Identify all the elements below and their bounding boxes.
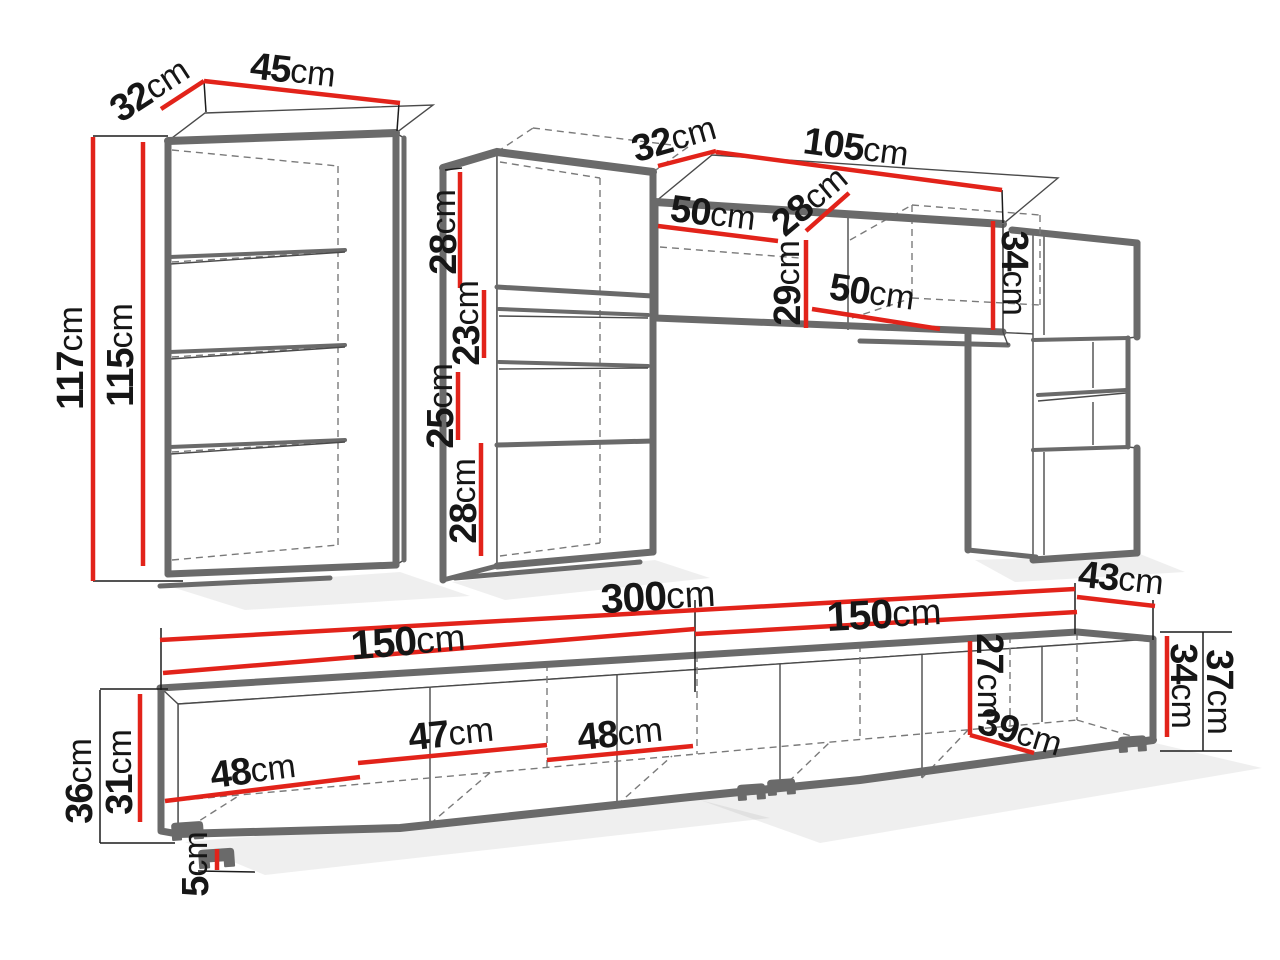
left-cabinet-front-face bbox=[168, 133, 396, 574]
label-mid-25: 25cm bbox=[420, 363, 462, 449]
label-117: 117cm bbox=[50, 306, 92, 410]
label-31: 31cm bbox=[99, 729, 141, 815]
label-mid-28-top: 28cm bbox=[423, 189, 465, 275]
label-34-stand: 34cm bbox=[1162, 643, 1204, 729]
left-tall-cabinet bbox=[160, 105, 433, 586]
label-36: 36cm bbox=[59, 738, 101, 824]
label-mid-23: 23cm bbox=[446, 280, 488, 366]
label-left-depth: 32cm bbox=[103, 49, 198, 131]
label-37: 37cm bbox=[1198, 649, 1240, 735]
label-mid-28-bottom: 28cm bbox=[443, 458, 485, 544]
label-300: 300cm bbox=[599, 570, 716, 622]
diagram-canvas: 32cm 45cm 117cm 115cm 28cm 23cm 25cm 28c… bbox=[0, 0, 1280, 960]
furniture-dimension-diagram: 32cm 45cm 117cm 115cm 28cm 23cm 25cm 28c… bbox=[0, 0, 1280, 960]
middle-cabinet-front-face bbox=[497, 152, 653, 566]
right-cabinet-side-panel bbox=[968, 331, 1036, 557]
label-150-right: 150cm bbox=[825, 588, 942, 640]
label-115: 115cm bbox=[100, 303, 142, 407]
label-5: 5cm bbox=[175, 831, 217, 896]
label-wall-29: 29cm bbox=[767, 240, 809, 326]
label-150-left: 150cm bbox=[349, 614, 467, 669]
label-wall-34: 34cm bbox=[993, 230, 1035, 316]
